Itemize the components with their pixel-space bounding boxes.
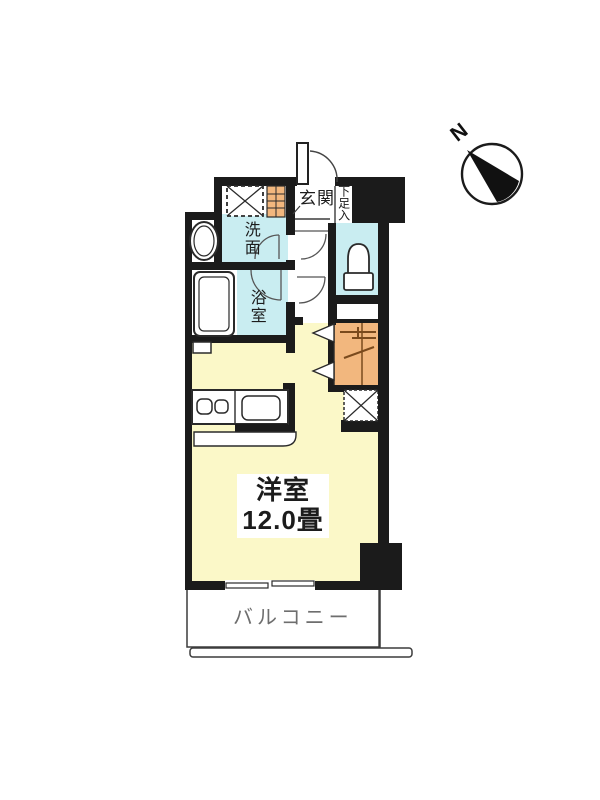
- floor-plan-page: N 玄関 下足入 洗面 浴室 洋室 12.0畳 バルコニー: [0, 0, 600, 800]
- wall-corridor-left-b: [286, 260, 295, 270]
- storage-cross-box-icon: [344, 390, 378, 421]
- bathroom-label: 浴室: [247, 289, 264, 325]
- wall-top-left: [214, 177, 297, 186]
- wall-corridor-stub: [286, 317, 303, 325]
- entry-door-icon: [297, 143, 337, 184]
- bathtub-icon: [194, 272, 234, 336]
- wall-toilet-left: [328, 223, 336, 325]
- wall-block-top-right: [352, 177, 405, 223]
- storage-bottom-wall: [341, 420, 383, 432]
- pipe-space-box: [193, 342, 211, 353]
- wall-toilet-bottom: [328, 295, 378, 302]
- toilet-counter-box: [336, 303, 380, 320]
- toilet-icon: [344, 244, 373, 290]
- washing-machine-pad-icon: [227, 186, 263, 216]
- main-room-name: 洋室: [237, 477, 329, 504]
- wall-right-outer: [378, 223, 389, 543]
- wall-left-upper: [214, 177, 222, 218]
- sliding-window-icon: [225, 580, 315, 590]
- wall-bottom-mid: [313, 581, 360, 590]
- shoe-cabinet-icon: [267, 186, 285, 217]
- balcony-label: バルコニー: [233, 608, 353, 629]
- kitchen-shelf: [194, 432, 296, 446]
- floor-plan-drawing: [0, 0, 600, 800]
- wall-washroom-bath: [185, 262, 288, 270]
- washroom-label: 洗面: [241, 221, 258, 257]
- washbasin-icon: [190, 222, 218, 260]
- kitchen-front-bar: [235, 424, 288, 432]
- wall-bottom-left: [185, 581, 227, 590]
- corridor-lower-door-icon: [297, 277, 325, 303]
- main-room-label: 洋室 12.0畳: [237, 474, 329, 538]
- kitchen-sink-icon: [242, 396, 280, 420]
- corridor-upper-door-icon: [295, 231, 328, 259]
- balcony-ledge: [190, 648, 412, 657]
- wall-corridor-left-a: [286, 177, 295, 235]
- wall-corridor-left-c: [286, 302, 295, 353]
- shoe-storage-label: 下足入: [337, 185, 350, 221]
- compass-north-arrow: [467, 150, 519, 202]
- main-room-size: 12.0畳: [237, 507, 329, 534]
- wall-pillar-bottom-right: [360, 543, 402, 590]
- entrance-label: 玄関: [299, 190, 335, 208]
- compass-icon: [462, 144, 522, 204]
- kitchen-counter: [192, 390, 296, 446]
